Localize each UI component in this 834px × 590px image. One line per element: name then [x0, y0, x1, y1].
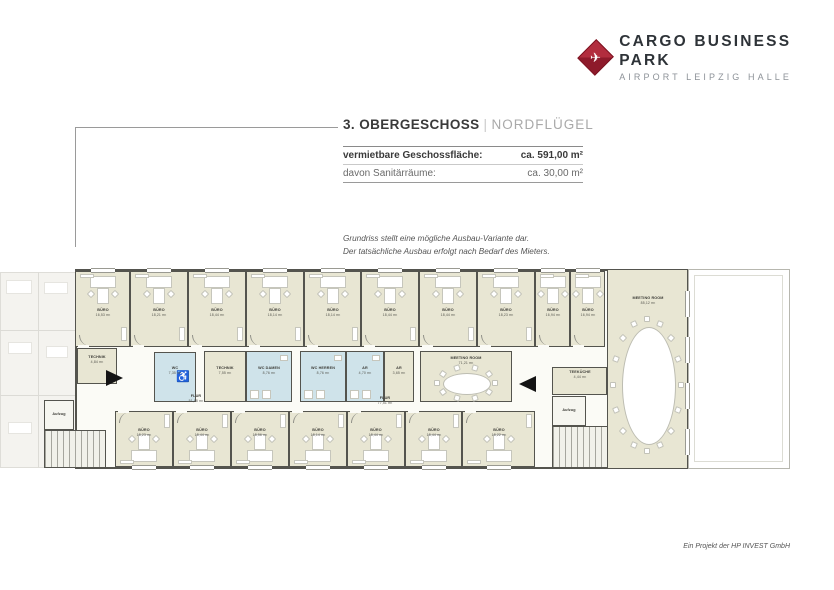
room-label: TECHNIK7,55 m²: [216, 366, 233, 375]
office-label: BÜRO18,44 m²: [426, 429, 441, 438]
window: [541, 268, 565, 273]
cabinet: [237, 327, 243, 341]
radiator: [236, 460, 250, 464]
desk: [153, 288, 165, 304]
door-opening: [350, 410, 361, 413]
radiator: [366, 274, 380, 278]
radiator: [294, 460, 308, 464]
door-opening: [118, 410, 129, 413]
cabinet: [121, 327, 127, 341]
desk: [211, 288, 223, 304]
meeting-table: [622, 327, 676, 445]
radiator: [482, 274, 496, 278]
office-label: BÜRO16,94 m²: [545, 309, 560, 318]
cabinet: [396, 414, 402, 428]
door-opening: [133, 345, 144, 348]
door-opening: [307, 345, 318, 348]
radiator: [309, 274, 323, 278]
staircase: [44, 430, 106, 468]
office-label: BÜRO18,44 m²: [441, 309, 456, 318]
cabinet: [526, 414, 532, 428]
desk: [305, 450, 331, 462]
wc-fixture: [350, 390, 359, 399]
chair: [492, 380, 498, 386]
door-opening: [249, 345, 260, 348]
desk: [493, 276, 519, 288]
desk: [500, 288, 512, 304]
faded-furniture: [44, 282, 68, 294]
wc-fixture: [316, 390, 325, 399]
radiator: [540, 274, 554, 278]
cabinet: [526, 327, 532, 341]
office-label: BÜRO16,94 m²: [580, 309, 595, 318]
window: [494, 268, 518, 273]
radiator: [352, 460, 366, 464]
cabinet: [453, 414, 459, 428]
room-label: TECHNIK4,84 m²: [88, 356, 105, 365]
desk: [582, 288, 594, 304]
radiator: [80, 274, 94, 278]
window: [263, 268, 287, 273]
cabinet: [164, 414, 170, 428]
door-opening: [465, 410, 476, 413]
window: [190, 465, 214, 470]
room-technik: [204, 351, 246, 402]
window: [422, 465, 446, 470]
cabinet: [222, 414, 228, 428]
faded-furniture: [8, 342, 32, 354]
room-ar: [384, 351, 414, 402]
door-opening: [364, 345, 375, 348]
desk: [131, 450, 157, 462]
office-label: BÜRO18,23 m²: [499, 309, 514, 318]
cabinet: [295, 327, 301, 341]
radiator: [467, 460, 481, 464]
wc-fixture: [304, 390, 313, 399]
radiator: [251, 274, 265, 278]
desk: [247, 450, 273, 462]
desk: [269, 288, 281, 304]
room-label: MEETING ROOM71,21 m²: [450, 357, 481, 366]
room-label: WC7,35 m²: [169, 367, 182, 376]
window: [436, 268, 460, 273]
window: [487, 465, 511, 470]
chair: [434, 380, 440, 386]
cabinet: [179, 327, 185, 341]
wc-fixture: [250, 390, 259, 399]
window: [364, 465, 388, 470]
window: [685, 429, 690, 455]
office-label: BÜRO18,44 m²: [210, 309, 225, 318]
elevator-label: Aufzug: [562, 409, 575, 414]
window: [205, 268, 229, 273]
room-label: AR4,70 m²: [359, 366, 372, 375]
chair: [644, 448, 650, 454]
terrace: [688, 269, 790, 469]
wc-fixture: [262, 390, 271, 399]
faded-furniture: [6, 280, 32, 294]
chair: [644, 315, 650, 321]
floor-plan: BÜRO16,53 m²BÜRO18,21 m²BÜRO18,44 m²BÜRO…: [0, 0, 834, 590]
window: [147, 268, 171, 273]
faded-wall: [0, 395, 78, 396]
desk: [327, 288, 339, 304]
desk: [262, 276, 288, 288]
room-label: AR3,65 m²: [393, 366, 406, 375]
staircase: [552, 426, 608, 468]
window: [576, 268, 600, 273]
window: [248, 465, 272, 470]
elevator-label: Aufzug: [52, 413, 65, 418]
corridor-label: FLUR77,51 m²: [378, 397, 393, 406]
desk: [435, 276, 461, 288]
expose-page: ✈ CARGO BUSINESS PARK AIRPORT LEIPZIG HA…: [0, 0, 834, 590]
desk: [547, 288, 559, 304]
room-label: TEEKÜCHE4,44 m²: [569, 371, 590, 380]
office-label: BÜRO16,53 m²: [95, 309, 110, 318]
entrance-arrow-left: [519, 376, 536, 392]
wc-fixture: [362, 390, 371, 399]
window: [685, 337, 690, 363]
entrance-arrow-right: [106, 370, 123, 386]
radiator: [575, 274, 589, 278]
desk: [363, 450, 389, 462]
radiator: [410, 460, 424, 464]
meeting-table: [443, 373, 491, 395]
office-label: BÜRO18,14 m²: [311, 429, 326, 438]
chair: [678, 382, 684, 388]
window: [378, 268, 402, 273]
window: [685, 291, 690, 317]
door-opening: [538, 345, 549, 348]
faded-wall: [0, 330, 78, 331]
desk: [377, 276, 403, 288]
office-label: BÜRO18,22 m²: [491, 429, 506, 438]
door-opening: [480, 345, 491, 348]
desk: [189, 450, 215, 462]
corridor-label: FLUR51,98 m²: [189, 395, 204, 404]
door-opening: [78, 345, 89, 348]
room-label: WC HERREN8,76 m²: [311, 366, 335, 375]
door-opening: [191, 345, 202, 348]
cabinet: [468, 327, 474, 341]
desk: [442, 288, 454, 304]
door-opening: [176, 410, 187, 413]
cabinet: [352, 327, 358, 341]
desk: [384, 288, 396, 304]
desk: [97, 288, 109, 304]
desk: [421, 450, 447, 462]
radiator: [424, 274, 438, 278]
window: [685, 383, 690, 409]
radiator: [178, 460, 192, 464]
faded-wall: [38, 272, 39, 468]
window: [91, 268, 115, 273]
desk: [486, 450, 512, 462]
window: [306, 465, 330, 470]
office-label: BÜRO18,21 m²: [152, 309, 167, 318]
sink: [372, 355, 380, 361]
desk: [320, 276, 346, 288]
office-label: BÜRO18,44 m²: [383, 309, 398, 318]
window: [132, 465, 156, 470]
office-label: BÜRO18,44 m²: [195, 429, 210, 438]
project-credit: Ein Projekt der HP INVEST GmbH: [683, 543, 790, 550]
door-opening: [292, 410, 303, 413]
door-opening: [234, 410, 245, 413]
desk: [204, 276, 230, 288]
sink: [334, 355, 342, 361]
room-label: MEETING ROOM85,12 m²: [632, 297, 663, 306]
office-label: BÜRO18,14 m²: [268, 309, 283, 318]
radiator: [120, 460, 134, 464]
door-opening: [422, 345, 433, 348]
faded-furniture: [46, 346, 68, 358]
office-label: BÜRO18,44 m²: [369, 429, 384, 438]
window: [321, 268, 345, 273]
door-opening: [408, 410, 419, 413]
office-label: BÜRO18,56 m²: [253, 429, 268, 438]
desk: [146, 276, 172, 288]
faded-furniture: [8, 422, 32, 434]
cabinet: [338, 414, 344, 428]
chair: [610, 381, 616, 387]
sink: [280, 355, 288, 361]
cabinet: [410, 327, 416, 341]
office-label: BÜRO18,23 m²: [137, 429, 152, 438]
radiator: [135, 274, 149, 278]
office-label: BÜRO18,14 m²: [325, 309, 340, 318]
radiator: [193, 274, 207, 278]
room-label: WC DAMEN8,76 m²: [258, 366, 280, 375]
terrace-inner-line: [694, 275, 783, 462]
door-opening: [573, 345, 584, 348]
cabinet: [280, 414, 286, 428]
